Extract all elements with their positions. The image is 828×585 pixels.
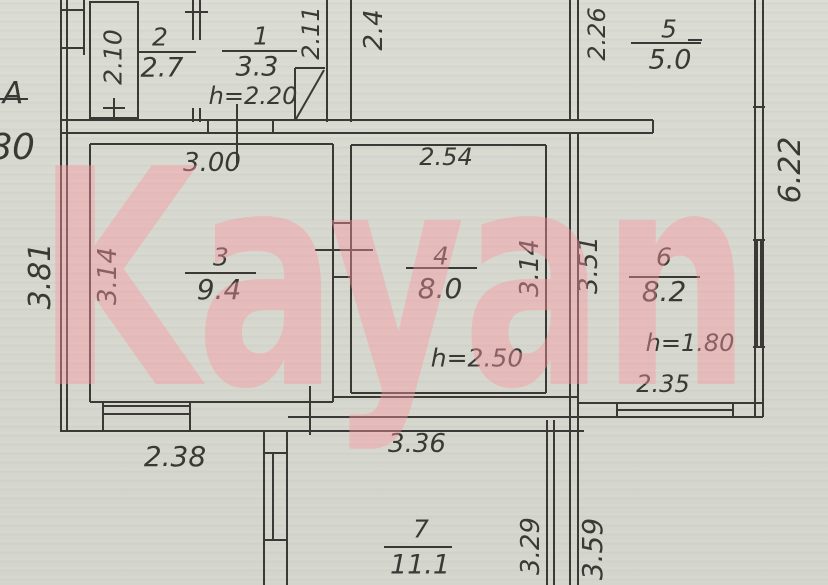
dim-3-51: 3.51: [576, 236, 602, 294]
floor-plan-drawing: [0, 0, 828, 585]
dim-2-26: 2.26: [585, 7, 609, 60]
dim-3-14-room4: 3.14: [517, 239, 543, 297]
dim-3-81: 3.81: [26, 243, 56, 310]
room4-area: 8.0: [418, 275, 463, 303]
room7-number: 7: [413, 517, 429, 542]
room6-area: 8.2: [642, 278, 687, 306]
axis-clipped-dim: 80: [0, 130, 35, 166]
room4-number: 4: [433, 244, 449, 269]
room1-area: 3.3: [236, 54, 279, 81]
dim-3-29: 3.29: [518, 517, 544, 575]
dim-6-22: 6.22: [776, 137, 806, 204]
dim-2-10: 2.10: [101, 29, 126, 85]
room7-area: 11.1: [390, 552, 450, 579]
door-swing: [295, 68, 325, 120]
room3-area: 9.4: [197, 276, 242, 304]
floor-plan-page: A 80 2 2.7 1 3.3 h=2.20 5 5.0 3 9.4 4 8.…: [0, 0, 828, 585]
room2-area: 2.7: [141, 55, 184, 82]
dim-2-4: 2.4: [361, 9, 387, 50]
room1-ceiling-height: h=2.20: [209, 84, 298, 108]
room2-number: 2: [152, 25, 168, 50]
dim-2-35: 2.35: [636, 372, 689, 396]
room5-area: 5.0: [649, 47, 692, 74]
room5-number: 5: [661, 17, 677, 42]
dim-2-11: 2.11: [299, 6, 323, 59]
dim-3-14-room3: 3.14: [95, 247, 121, 305]
dim-3-00: 3.00: [183, 150, 241, 176]
axis-letter: A: [3, 79, 24, 109]
room4-ceiling-height: h=2.50: [431, 346, 523, 371]
dim-2-38: 2.38: [144, 443, 206, 471]
room3-number: 3: [213, 245, 229, 270]
room6-number: 6: [656, 245, 672, 270]
room1-number: 1: [253, 24, 269, 49]
dim-2-54: 2.54: [419, 145, 472, 169]
room6-ceiling-height: h=1.80: [646, 331, 735, 355]
dim-3-59: 3.59: [579, 518, 607, 580]
dim-3-36: 3.36: [388, 431, 446, 457]
